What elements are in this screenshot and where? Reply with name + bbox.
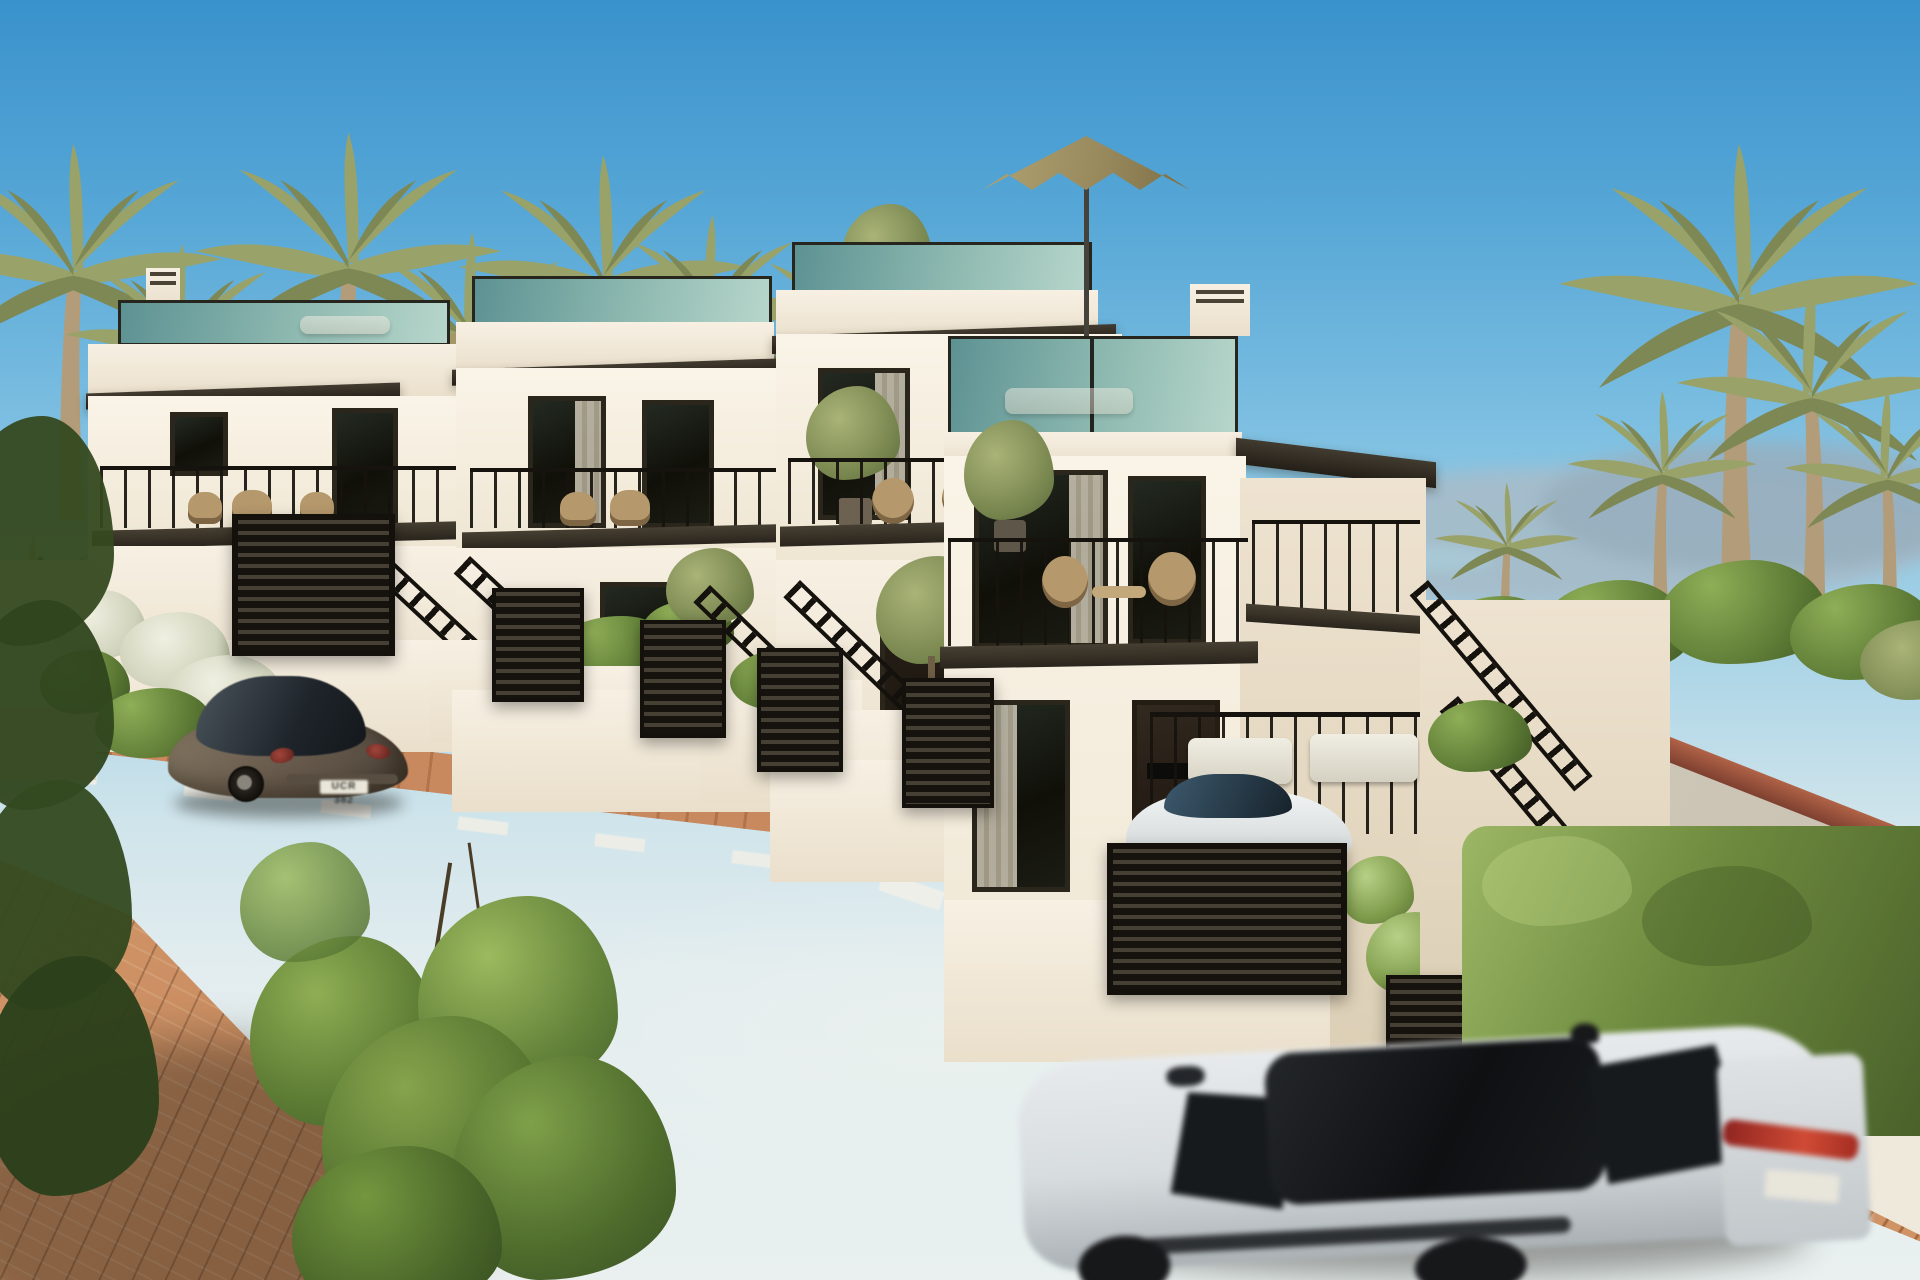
moving-suv: [1020, 986, 1900, 1280]
architectural-render-scene: UCR 382: [0, 0, 1920, 1280]
suv-antenna-fin: [1570, 1023, 1599, 1044]
dark-foliage: [0, 600, 114, 810]
dark-foliage: [0, 956, 159, 1196]
suv-roof: [1263, 1037, 1606, 1206]
suv-rotated-group: [1013, 963, 1907, 1280]
